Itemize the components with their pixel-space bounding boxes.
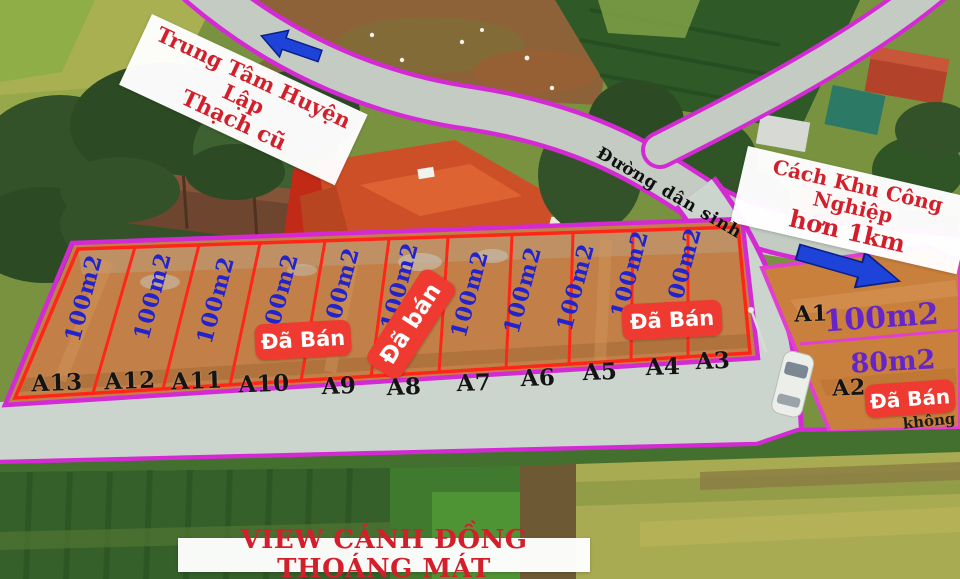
plot-label-a11: A11 [171,367,223,396]
tree-blob [60,157,180,223]
plot-label-a7: A7 [456,369,492,397]
plot-area-a2: 80m2 [850,344,936,379]
sold-banner-a4-a3: Đã Bán [621,299,723,340]
plot-label-a6: A6 [520,364,556,392]
bottom-view-text: VIEW CÁNH ĐỒNG THOÁNG MÁT [188,526,580,579]
plot-label-a3: A3 [695,347,731,375]
bottom-view-banner: VIEW CÁNH ĐỒNG THOÁNG MÁT [178,538,590,572]
plot-label-a9: A9 [321,372,357,400]
plot-label-a10: A10 [238,370,290,399]
plot-label-a5: A5 [582,358,618,386]
plot-label-a12: A12 [104,367,156,396]
plot-label-a13: A13 [31,369,83,398]
sold-banner-a10-a9: Đã Bán [254,320,352,361]
aerial-site-map: Trung Tâm Huyện Lập Thạch cũ Cách Khu Cô… [0,0,960,579]
sold-banner-a2: Đã Bán [864,379,956,418]
plot-label-a4: A4 [645,353,681,381]
